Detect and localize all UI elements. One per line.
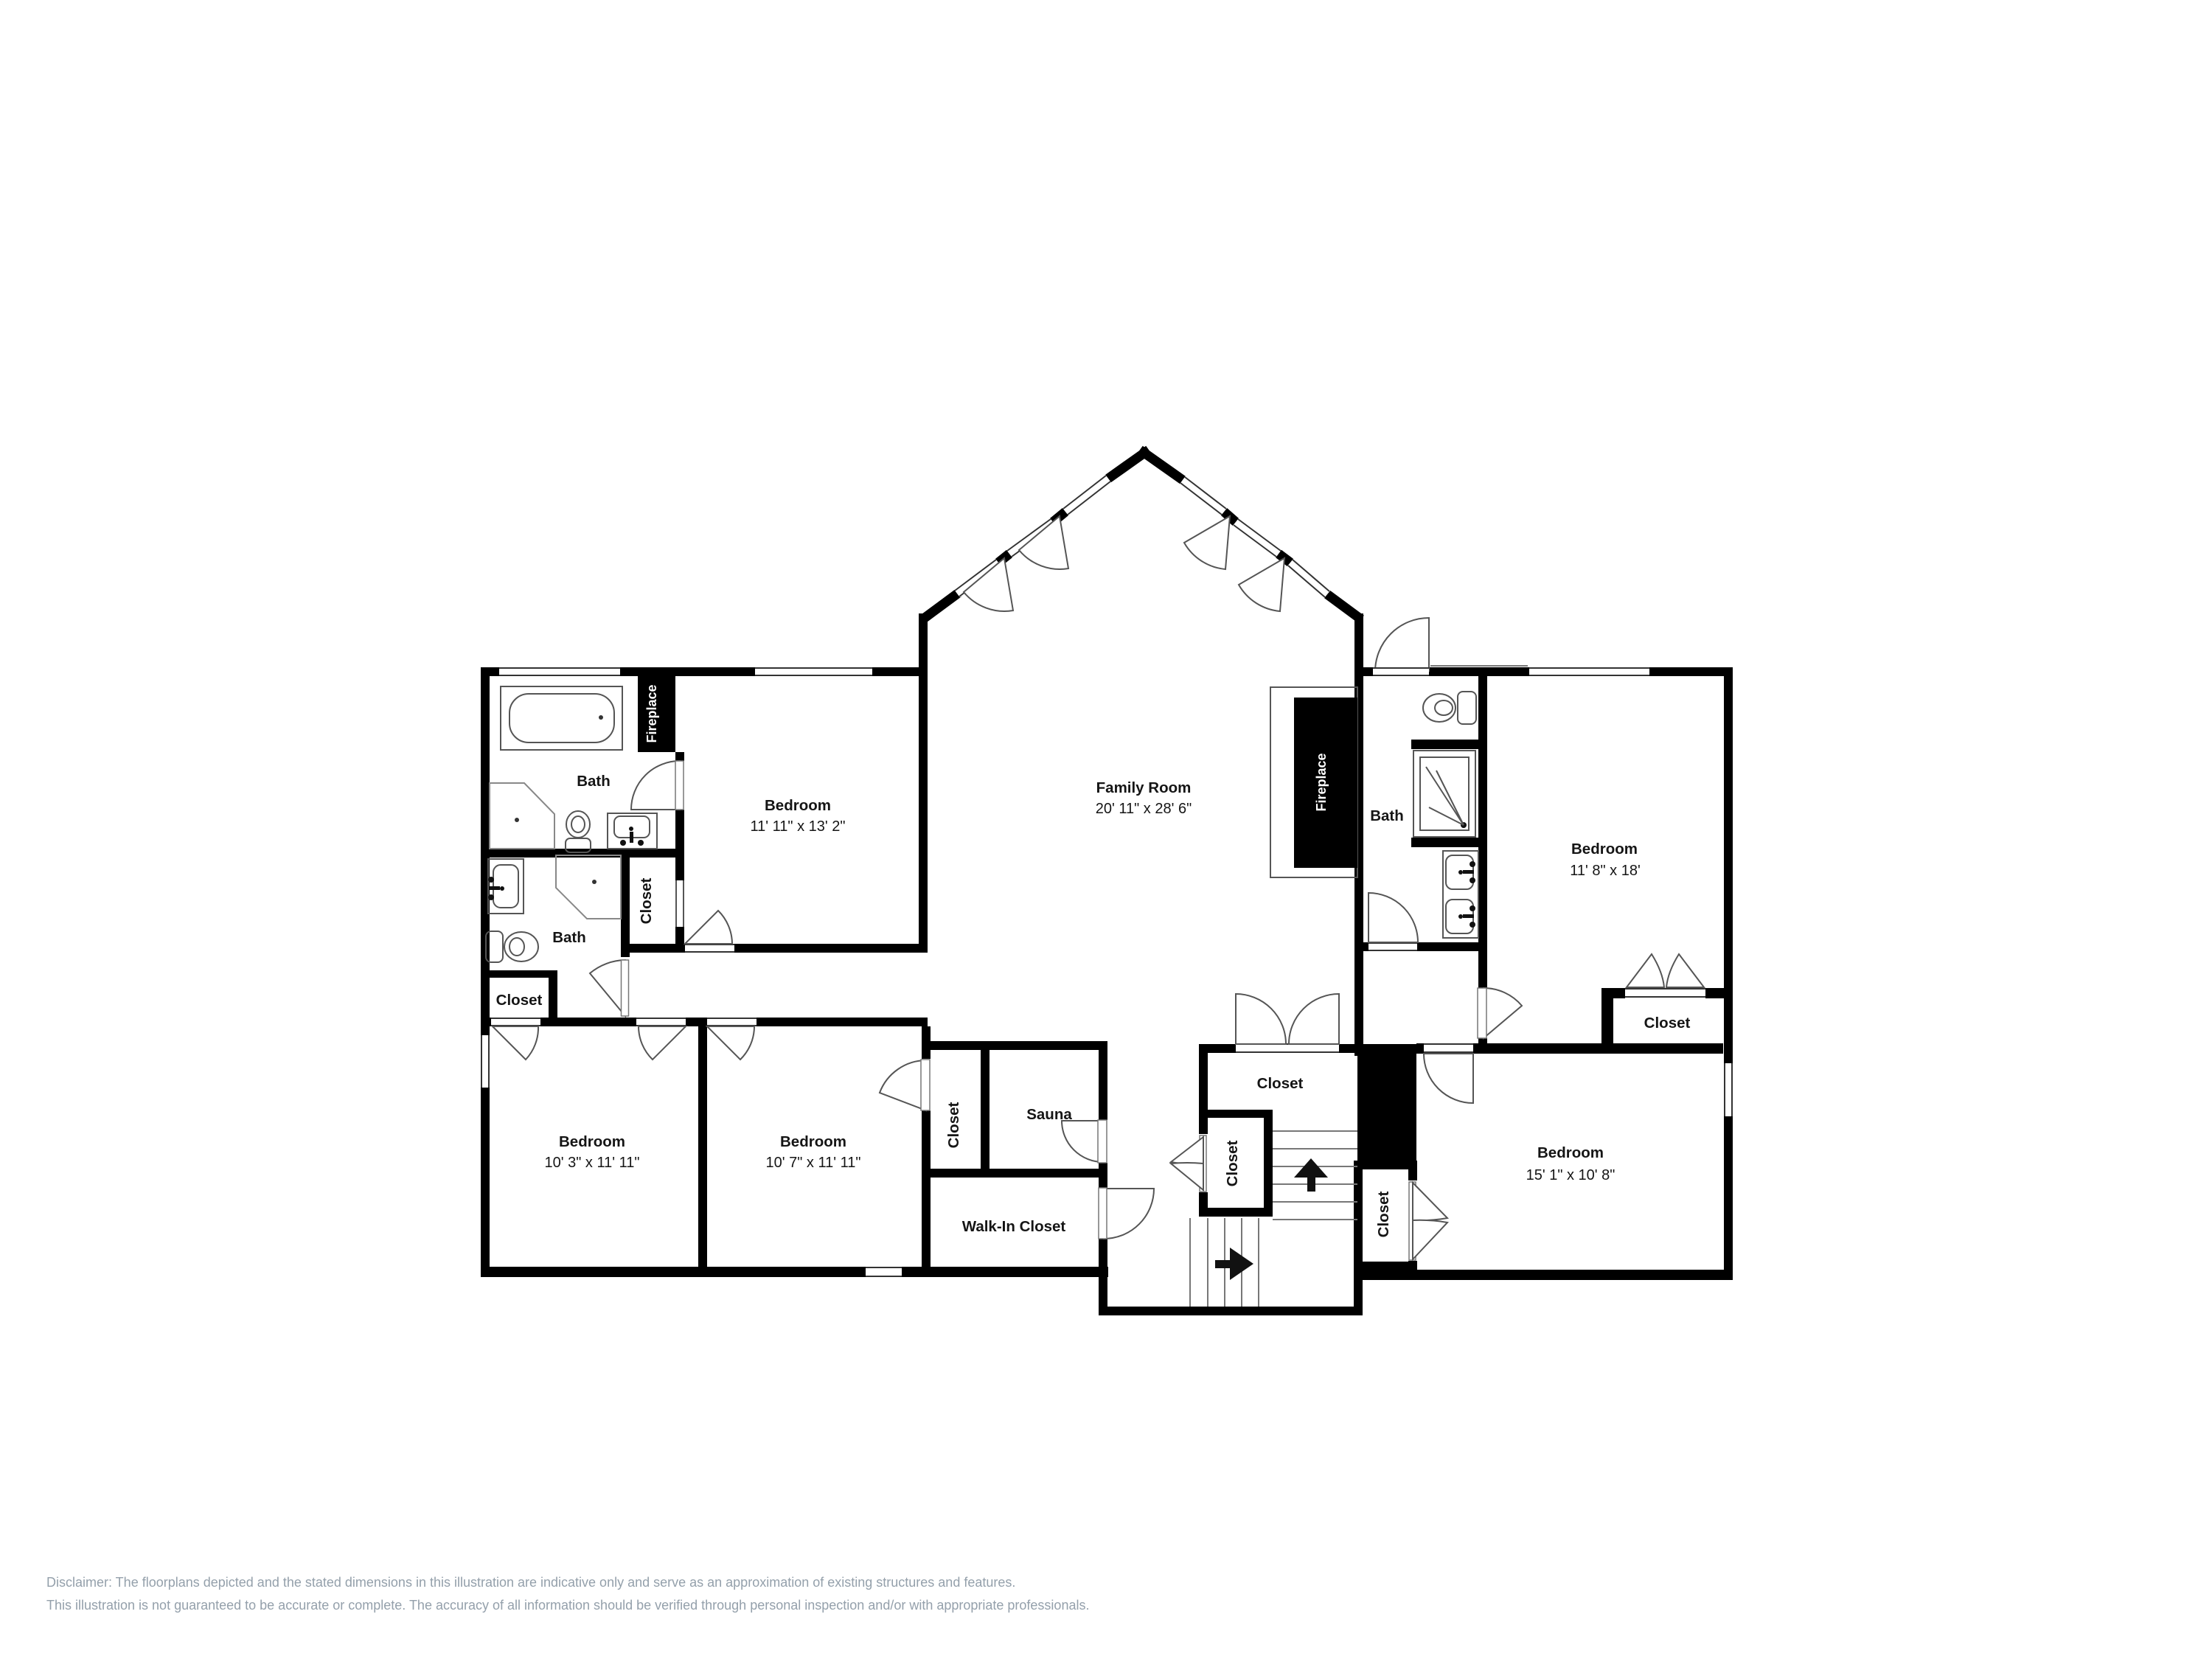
svg-text:11' 11" x 13' 2": 11' 11" x 13' 2" [751, 818, 846, 835]
svg-text:Bedroom: Bedroom [1571, 841, 1638, 858]
svg-text:Bedroom: Bedroom [765, 797, 831, 814]
svg-text:Bedroom: Bedroom [559, 1133, 625, 1150]
svg-text:Bedroom: Bedroom [1537, 1144, 1604, 1161]
svg-text:Walk-In Closet: Walk-In Closet [962, 1218, 1066, 1235]
svg-text:20' 11" x 28' 6": 20' 11" x 28' 6" [1096, 801, 1192, 817]
svg-text:Bedroom: Bedroom [780, 1133, 846, 1150]
svg-text:11' 8" x 18': 11' 8" x 18' [1570, 863, 1641, 879]
svg-text:Closet: Closet [1644, 1015, 1691, 1032]
svg-text:10' 3" x 11' 11": 10' 3" x 11' 11" [545, 1155, 640, 1171]
svg-text:Closet: Closet [1224, 1141, 1241, 1187]
svg-text:Sauna: Sauna [1026, 1106, 1072, 1123]
svg-text:10' 7" x 11' 11": 10' 7" x 11' 11" [766, 1155, 861, 1171]
svg-text:Closet: Closet [1257, 1075, 1304, 1092]
svg-text:Disclaimer: The floorplans dep: Disclaimer: The floorplans depicted and … [46, 1575, 1015, 1590]
svg-text:Closet: Closet [1375, 1192, 1392, 1238]
svg-text:Closet: Closet [638, 878, 655, 925]
svg-text:Fireplace: Fireplace [644, 684, 659, 742]
svg-text:15' 1" x 10' 8": 15' 1" x 10' 8" [1526, 1167, 1615, 1183]
svg-text:Closet: Closet [496, 992, 543, 1009]
svg-text:Bath: Bath [552, 929, 586, 946]
svg-text:Bath: Bath [1370, 807, 1404, 824]
svg-text:Bath: Bath [577, 773, 611, 790]
svg-text:This illustration is not guara: This illustration is not guaranteed to b… [46, 1598, 1089, 1613]
svg-text:Family Room: Family Room [1096, 779, 1192, 796]
svg-text:Fireplace: Fireplace [1314, 753, 1329, 811]
svg-text:Closet: Closet [945, 1102, 962, 1149]
